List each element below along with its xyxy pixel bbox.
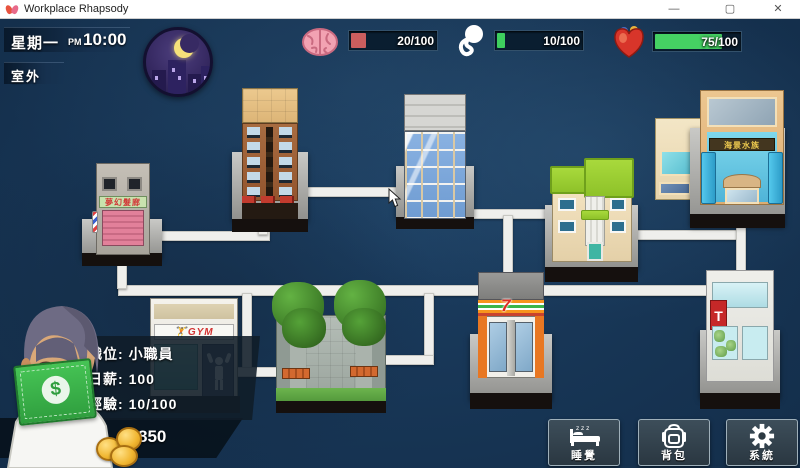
moon-city-silhouette [201, 66, 213, 96]
roof-section [478, 272, 544, 300]
brand-stripes [478, 300, 544, 316]
building-greenhouse[interactable] [545, 158, 638, 282]
bench [282, 368, 310, 379]
window [102, 177, 117, 191]
stat-bar: 10/100 [494, 30, 584, 51]
backpack-icon [639, 423, 709, 449]
location-display: 室外 [4, 62, 64, 84]
minimize-button[interactable]: — [660, 0, 688, 18]
park[interactable] [276, 282, 386, 415]
svg-text:z z z: z z z [576, 425, 589, 432]
barbershop-sign: 夢幻髮廊 [99, 196, 147, 208]
building-pharmacy[interactable]: T [700, 270, 780, 409]
path-segment [424, 293, 434, 363]
wisp-icon [450, 23, 490, 61]
door [587, 242, 603, 261]
game-window: Workplace Rhapsody — ▢ ✕ 夢幻髮廊 [0, 0, 800, 468]
pillar [701, 152, 716, 204]
sleep-button-label: 睡覺 [549, 447, 619, 463]
window-column [266, 127, 273, 197]
roof-section [242, 88, 298, 123]
building-plinth [690, 214, 785, 228]
system-button[interactable]: 系統 [726, 419, 798, 466]
shutter-door [102, 210, 144, 246]
awning [242, 196, 298, 203]
money-value: 850 [138, 427, 166, 447]
door-pillar [507, 320, 515, 376]
brain-icon [300, 24, 340, 60]
window-column [247, 127, 260, 197]
exp-value: 10/100 [129, 396, 178, 412]
title-bar: Workplace Rhapsody — ▢ ✕ [0, 0, 800, 19]
building-apartment[interactable] [232, 88, 308, 232]
tree [282, 308, 326, 348]
backpack-button[interactable]: 背包 [638, 419, 710, 466]
window [558, 198, 576, 211]
gear-icon [727, 423, 797, 449]
app-icon [6, 4, 18, 15]
stat-fill [351, 33, 366, 48]
plant [714, 330, 725, 342]
glass-door [515, 322, 533, 372]
lower-window [742, 326, 768, 360]
day-label: 星期一 [11, 32, 59, 53]
stat-health: 75/100 [610, 25, 648, 64]
maximize-button[interactable]: ▢ [716, 0, 744, 18]
mouse-cursor [388, 188, 402, 208]
building-plinth [700, 393, 780, 409]
building-office[interactable] [396, 94, 474, 230]
building-plinth [232, 219, 308, 232]
stat-bar: 75/100 [652, 31, 742, 52]
building-restaurant[interactable]: 海景水族 [655, 90, 785, 208]
job-value: 小職員 [129, 346, 174, 362]
roof-section [404, 94, 466, 131]
system-button-label: 系統 [727, 447, 797, 463]
store-sign: 7 [501, 296, 510, 316]
money-bill-icon: $ [13, 358, 97, 426]
storefront [242, 203, 298, 219]
glass-door [489, 322, 507, 372]
stat-fill [497, 33, 505, 48]
storefront-side [478, 316, 487, 378]
coin-icon [110, 445, 138, 467]
plant [726, 340, 736, 351]
heart-icon [610, 25, 648, 59]
balcony [585, 196, 605, 246]
roof-band [154, 304, 234, 319]
building-plinth [545, 267, 638, 282]
stat-spirit: 10/100 [450, 23, 490, 66]
moon-city-silhouette [168, 60, 186, 96]
table [723, 174, 761, 188]
window [127, 177, 142, 191]
salary-value: 100 [129, 371, 155, 387]
clock-label: 10:00 [83, 30, 126, 50]
pillar [768, 152, 783, 204]
door [725, 188, 759, 204]
roof-section [584, 158, 634, 198]
time-display: 星期一 PM 10:00 [4, 27, 130, 52]
path-segment [633, 230, 745, 240]
backpack-button-label: 背包 [639, 447, 709, 463]
meridiem-label: PM [68, 37, 82, 47]
building-barbershop[interactable]: 夢幻髮廊 [82, 163, 162, 266]
close-button[interactable]: ✕ [764, 0, 792, 18]
building-plinth [470, 393, 552, 409]
restaurant-sign: 海景水族 [709, 138, 775, 151]
stat-value: 10/100 [543, 34, 580, 48]
balcony-awning [581, 210, 609, 220]
night-moon-icon [143, 27, 213, 97]
stat-value: 20/100 [397, 34, 434, 48]
window [610, 198, 626, 211]
crescent-moon-icon [174, 38, 194, 58]
bench [350, 366, 378, 377]
window-column [279, 127, 292, 197]
location-label: 室外 [11, 66, 41, 85]
sleep-button[interactable]: z z z 睡覺 [548, 419, 620, 466]
building-convenience-store[interactable]: 7 [470, 272, 552, 409]
park-plinth [276, 401, 386, 413]
stat-bar: 20/100 [348, 30, 438, 51]
moon-city-silhouette [152, 70, 166, 96]
barber-pole-icon [92, 211, 98, 233]
stat-value: 75/100 [701, 35, 738, 49]
stat-brain: 20/100 [300, 24, 340, 65]
tree [342, 308, 386, 346]
upper-window [707, 97, 777, 127]
path-segment [383, 355, 434, 365]
game-map: 夢幻髮廊 [0, 19, 800, 468]
window [659, 182, 691, 195]
window [558, 220, 576, 233]
path-segment [152, 231, 270, 241]
storefront-side [535, 316, 544, 378]
plant [715, 346, 727, 357]
window-title: Workplace Rhapsody [24, 3, 128, 15]
glass-facade [404, 131, 466, 219]
window [610, 220, 626, 233]
bed-icon: z z z [549, 423, 619, 449]
moon-city-silhouette [188, 74, 202, 96]
